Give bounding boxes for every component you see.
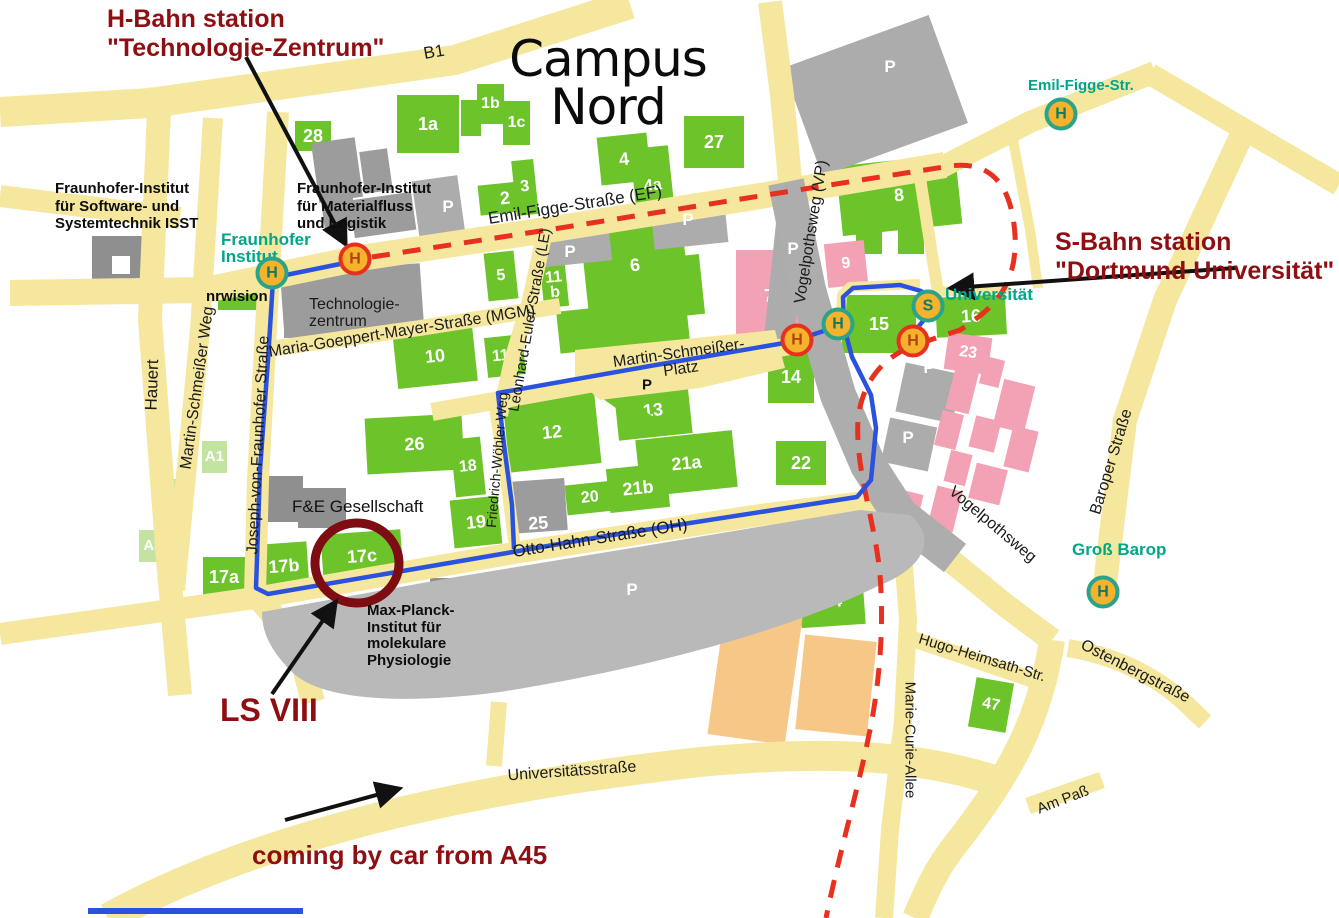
building-a3: A3: [139, 530, 167, 562]
bus-stop-gross-barop: H: [1087, 576, 1120, 609]
road-vogelpothsweg-south: [898, 505, 1052, 640]
map-title: Campus Nord: [488, 36, 728, 131]
road-northeast: [1150, 74, 1339, 185]
hbahn-station-technologie-zentrum: H: [339, 243, 372, 276]
building-9: 9: [824, 240, 868, 288]
annotation-hbahn-station: H-Bahn station "Technologie-Zentrum": [107, 5, 384, 63]
parking-icon: P: [682, 210, 693, 230]
road-access-stub: [494, 702, 499, 766]
building-1a: 1a: [397, 95, 459, 153]
road-jvf-stub: [255, 594, 313, 702]
building-18: 18: [450, 437, 486, 498]
building-20: 20: [565, 481, 616, 516]
road-baroper: [1104, 128, 1245, 592]
stop-label-emil-figge: Emil-Figge-Str.: [1028, 77, 1134, 94]
building-block: [498, 636, 524, 666]
building-17a: 17a: [203, 557, 245, 597]
hbahn-station-campus-east: H: [897, 325, 930, 358]
building-block: [898, 228, 924, 254]
building-25: 25: [506, 478, 567, 534]
street-label-friedrich-woehler: Friedrich-Wöhler Weg: [484, 392, 510, 529]
stop-label-gross-barop: Groß Barop: [1072, 540, 1166, 560]
building-orange: [795, 634, 877, 736]
bus-stop-universitaet: H: [822, 308, 855, 341]
building-8: 8: [836, 154, 963, 236]
label-max-planck: Max-Planck- Institut für molekulare Phys…: [367, 603, 455, 669]
parking-icon: P: [626, 580, 637, 600]
building-isst: [92, 236, 152, 296]
stop-label-universitaet: Universität: [945, 285, 1033, 305]
building-26: 26: [365, 414, 465, 475]
road-service-3: [1013, 140, 1038, 288]
street-label-baroper-strasse: Baroper Straße: [1088, 407, 1136, 516]
parking-icon-platz: P: [642, 377, 652, 394]
building-5: 5: [484, 251, 519, 302]
road-ostenberg: [1068, 648, 1205, 722]
label-fe-gesellschaft: F&E Gesellschaft: [292, 497, 423, 517]
building-22: 22: [776, 441, 826, 485]
parking-icon: P: [902, 428, 913, 448]
road-vogelpothsweg-north: [770, 2, 790, 180]
label-nrwision: nrwision: [206, 288, 268, 306]
building-orange: [707, 607, 802, 745]
parking-icon: P: [884, 57, 895, 77]
label-fraunhofer-isst: Fraunhofer-Institut für Software- und Sy…: [55, 180, 198, 233]
building-47: 47: [968, 677, 1014, 733]
sbahn-station-dortmund-universitaet: S: [912, 290, 945, 323]
parking-icon: P: [923, 358, 934, 378]
annotation-car-a45: coming by car from A45: [252, 840, 547, 870]
parking-icon: P: [564, 242, 575, 262]
building-pink: [894, 490, 923, 526]
annotation-sbahn-station: S-Bahn station "Dortmund Universität": [1055, 228, 1334, 286]
hbahn-station-campus-west: H: [781, 324, 814, 357]
street-label-b1: B1: [422, 42, 445, 63]
arrow-car-a45: [285, 789, 398, 820]
building-17c: 17c: [320, 529, 403, 582]
building-a2: A2: [165, 479, 190, 513]
parking-icon: P: [787, 239, 798, 259]
building-24: 24: [798, 574, 865, 628]
building-pink: [1003, 425, 1038, 472]
bus-stop-fraunhofer-institut: H: [256, 257, 289, 290]
arrow-ls-viii: [272, 603, 335, 694]
bus-stop-emil-figge-str: H: [1045, 98, 1078, 131]
street-label-marie-curie-allee: Marie-Curie-Allee: [902, 682, 917, 799]
street-label-ostenbergstrasse: Ostenbergstraße: [1078, 637, 1192, 706]
building-21b: 21b: [606, 463, 670, 513]
street-label-hugo-heimsath: Hugo-Heimsath-Str.: [917, 631, 1047, 684]
building-17b: 17b: [258, 541, 309, 591]
street-label-am-pass: Am Paß: [1035, 783, 1091, 817]
annotation-ls-viii: LS VIII: [220, 692, 318, 729]
building-pink: [969, 415, 1002, 452]
building-14: 14: [768, 351, 814, 403]
parking-lot: [783, 15, 968, 176]
building-a1: A1: [202, 441, 227, 473]
parking-icon: P: [442, 197, 453, 217]
label-fraunhofer-iml: Fraunhofer-Institut für Materialfluss un…: [297, 180, 431, 233]
building-pink: [943, 450, 972, 486]
campus-map: 28 1a 1b 1c 2 3 4 4a 27 8 5 11 b 6 a 6 7…: [0, 0, 1339, 918]
street-label-universitaetsstrasse: Universitätsstraße: [507, 759, 637, 784]
building-courtyard: [112, 256, 130, 274]
street-label-hauert: Hauert: [142, 359, 161, 411]
